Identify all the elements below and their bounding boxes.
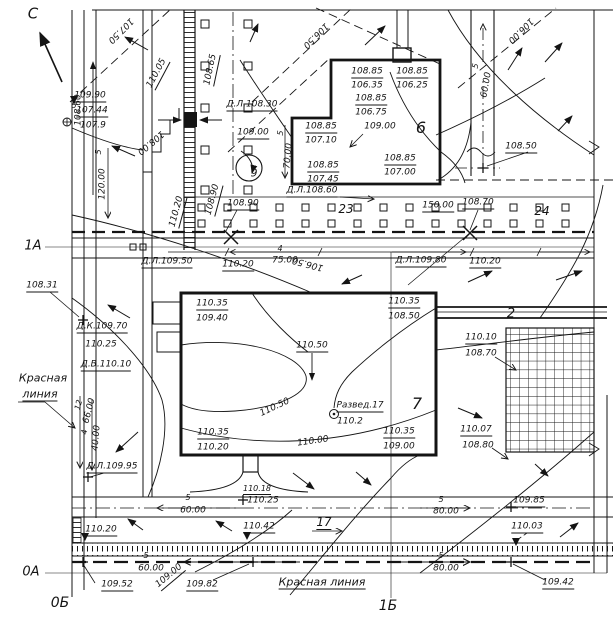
dimension-lines — [80, 148, 541, 470]
tree-symbol — [484, 220, 491, 227]
north-arrow — [40, 33, 62, 82]
tree-symbol — [406, 220, 413, 227]
contour-110-00 — [181, 410, 436, 441]
spot-mark-triangle — [70, 96, 78, 104]
benchmark-symbols — [63, 118, 71, 126]
retaining-wall-strip — [143, 10, 233, 250]
spot-mark-triangle — [81, 533, 89, 541]
tree-symbol — [250, 204, 257, 211]
grid-plaza — [506, 328, 594, 452]
tree-symbol — [302, 220, 309, 227]
road-1a — [72, 238, 594, 258]
tree-symbol — [432, 220, 439, 227]
tree-symbol — [536, 204, 543, 211]
tree-symbol — [244, 104, 252, 112]
tree-symbol — [432, 204, 439, 211]
tree-symbol — [198, 220, 205, 227]
tree-symbol — [276, 220, 283, 227]
tree-symbol — [406, 204, 413, 211]
tree-symbol — [201, 104, 209, 112]
spot-mark-triangle — [243, 532, 251, 540]
tree-symbol — [458, 204, 465, 211]
tree-symbol — [484, 204, 491, 211]
tree-symbol — [244, 186, 252, 194]
tree-symbol — [201, 20, 209, 28]
tree-symbol — [510, 220, 517, 227]
tree-symbol — [380, 220, 387, 227]
contour-110-50 — [181, 342, 306, 411]
wall-block — [184, 112, 197, 127]
tree-symbol — [244, 20, 252, 28]
right-road — [436, 10, 613, 180]
drain-pipe — [243, 455, 258, 472]
site-plan-drawing: С107.50106.50106.00110.05108.65109.90107… — [0, 0, 613, 620]
tree-symbol — [354, 220, 361, 227]
road-2 — [436, 307, 607, 318]
tree-symbol — [380, 204, 387, 211]
tree-symbol — [201, 62, 209, 70]
tree-symbol — [198, 204, 205, 211]
tree-symbol — [302, 204, 309, 211]
survey-point-symbol — [330, 410, 339, 419]
road-9-circle — [236, 151, 262, 181]
tree-symbol — [201, 146, 209, 154]
sidewalk-comb — [72, 543, 613, 556]
tree-symbol — [201, 186, 209, 194]
tree-symbol — [354, 204, 361, 211]
tree-symbol — [244, 146, 252, 154]
porch — [157, 332, 181, 352]
tree-symbol — [510, 204, 517, 211]
plan-linework — [0, 0, 613, 620]
building-7-outline — [153, 293, 436, 492]
tree-symbol — [536, 220, 543, 227]
leader-lines — [18, 134, 545, 583]
tree-symbol — [562, 204, 569, 211]
tree-symbol — [328, 204, 335, 211]
flow-arrows — [93, 24, 582, 537]
tree-symbol — [250, 220, 257, 227]
porch — [153, 302, 181, 324]
roads-bottom — [72, 497, 613, 562]
frame-lines — [45, 10, 613, 598]
tree-symbol — [276, 204, 283, 211]
tree-symbol — [224, 204, 231, 211]
building-6-outline — [285, 10, 440, 184]
tree-symbol — [562, 220, 569, 227]
tree-symbol — [328, 220, 335, 227]
